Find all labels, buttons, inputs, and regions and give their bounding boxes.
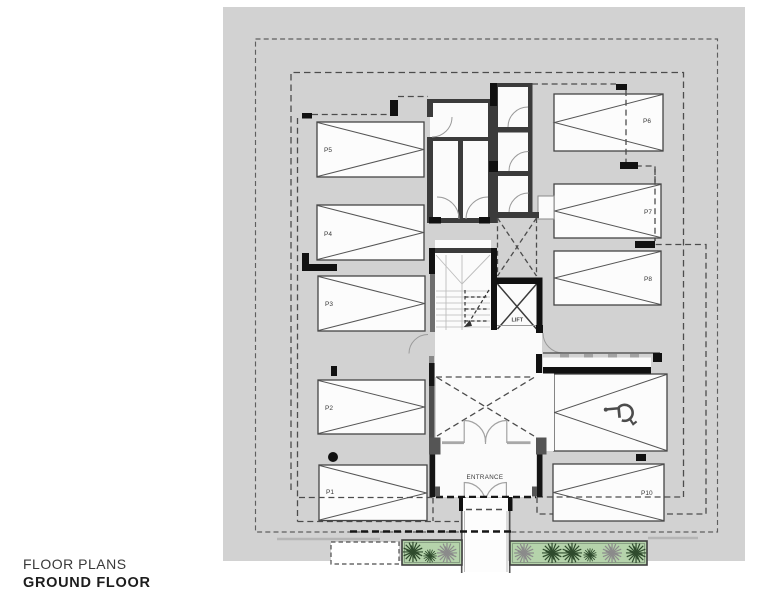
svg-text:P4: P4 — [324, 231, 332, 238]
svg-text:P8: P8 — [644, 276, 652, 283]
svg-text:P1: P1 — [326, 489, 334, 496]
svg-text:ENTRANCE: ENTRANCE — [467, 474, 504, 481]
svg-text:P6: P6 — [643, 118, 651, 125]
svg-text:P7: P7 — [644, 209, 652, 216]
svg-text:P2: P2 — [325, 405, 333, 412]
svg-text:LIFT: LIFT — [512, 318, 524, 324]
svg-text:P5: P5 — [324, 147, 332, 154]
svg-text:P10: P10 — [641, 490, 653, 497]
svg-text:P3: P3 — [325, 301, 333, 308]
